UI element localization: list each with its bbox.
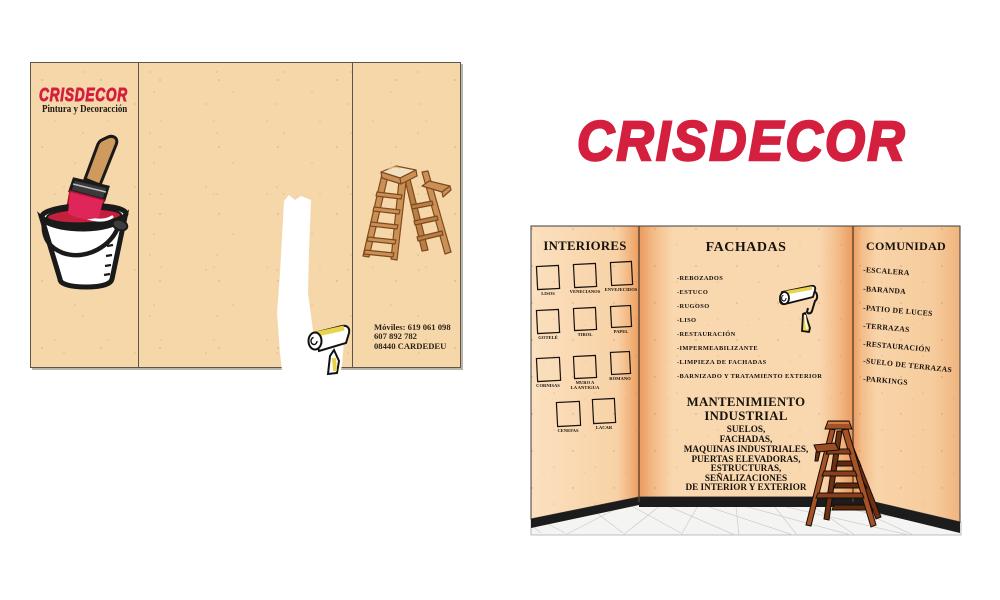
svg-text:GOTELÉ: GOTELÉ <box>538 335 557 340</box>
svg-text:CORNISAS: CORNISAS <box>536 383 560 388</box>
svg-text:-LIMPIEZA DE FACHADAS: -LIMPIEZA DE FACHADAS <box>677 359 767 366</box>
svg-text:CENEFAS: CENEFAS <box>557 428 579 433</box>
svg-text:FACHADAS: FACHADAS <box>706 240 787 255</box>
svg-text:-RUGOSO: -RUGOSO <box>677 303 710 310</box>
svg-text:-RESTAURACIÓN: -RESTAURACIÓN <box>677 330 736 338</box>
svg-text:DE INTERIOR Y EXTERIOR: DE INTERIOR Y EXTERIOR <box>685 482 806 492</box>
svg-text:FACHADAS,: FACHADAS, <box>720 434 773 444</box>
svg-text:ENVEJECIDOS: ENVEJECIDOS <box>605 287 638 292</box>
svg-text:ROMANO: ROMANO <box>609 376 631 381</box>
svg-text:LISOS: LISOS <box>541 291 555 296</box>
svg-text:MAQUINAS INDUSTRIALES,: MAQUINAS INDUSTRIALES, <box>684 444 809 454</box>
svg-text:-IMPERMEABILIZANTE: -IMPERMEABILIZANTE <box>677 345 758 352</box>
svg-text:-BARNIZADO Y TRATAMIENTO EXTER: -BARNIZADO Y TRATAMIENTO EXTERIOR <box>677 373 822 380</box>
svg-text:SUELOS,: SUELOS, <box>727 424 766 434</box>
svg-text:LACAR: LACAR <box>596 425 613 430</box>
svg-text:TIROL: TIROL <box>578 332 593 337</box>
svg-text:-ESTUCO: -ESTUCO <box>677 289 708 296</box>
svg-text:MANTENIMIENTO: MANTENIMIENTO <box>687 395 806 409</box>
svg-text:INDUSTRIAL: INDUSTRIAL <box>704 409 787 423</box>
svg-text:VENECIANOS: VENECIANOS <box>570 289 601 294</box>
svg-text:ESTRUCTURAS,: ESTRUCTURAS, <box>711 463 782 473</box>
svg-text:LA ANTIGUA: LA ANTIGUA <box>571 385 600 390</box>
svg-text:-REBOZADOS: -REBOZADOS <box>677 275 723 282</box>
svg-text:-LISO: -LISO <box>677 317 696 324</box>
svg-text:PAPEL: PAPEL <box>614 329 629 334</box>
svg-text:COMUNIDAD: COMUNIDAD <box>866 239 946 253</box>
svg-text:INTERIORES: INTERIORES <box>543 239 626 253</box>
